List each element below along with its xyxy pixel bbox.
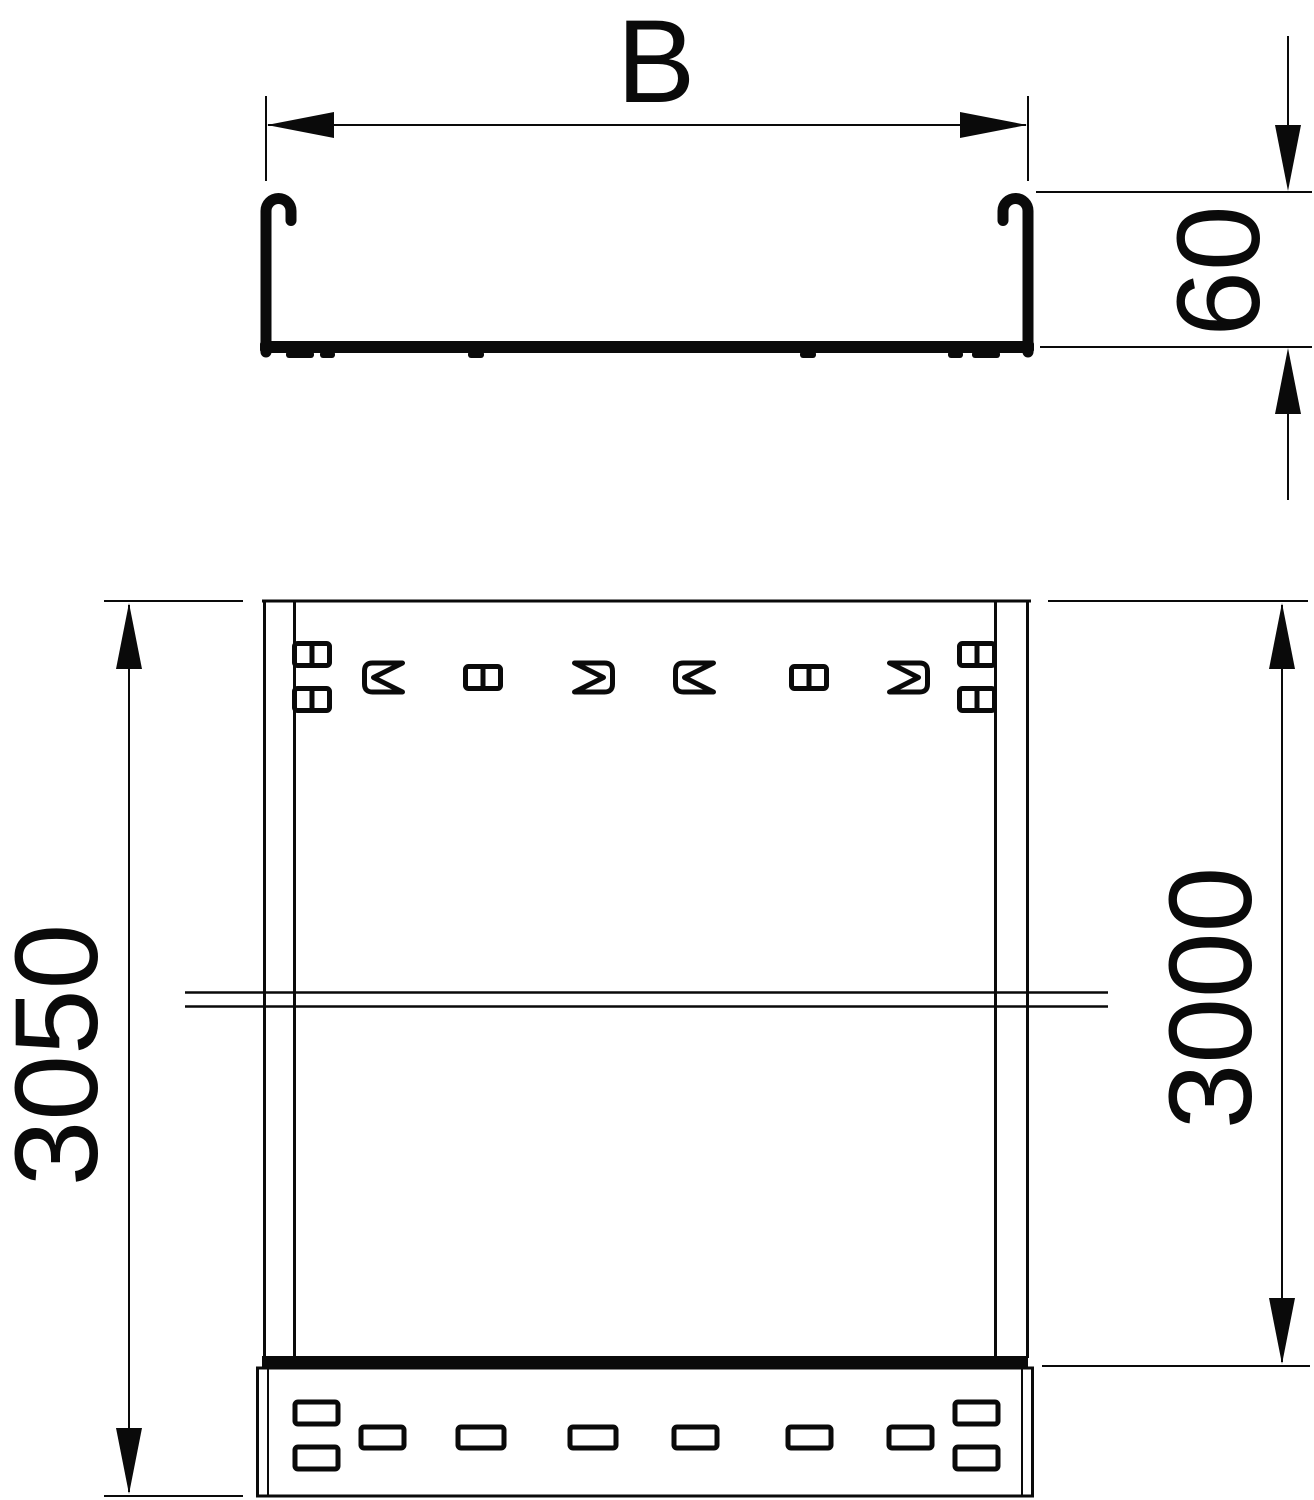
cross-section-bottom-plate [260, 341, 1034, 353]
cable-tray-drawing: B 60 [0, 0, 1314, 1500]
arrow-down [1269, 1298, 1295, 1364]
arrow-down [1275, 125, 1301, 191]
technical-drawing-page: B 60 [0, 0, 1314, 1500]
plan-slot-row [295, 644, 995, 711]
rail-slot-pair [295, 644, 330, 666]
arrow-left [267, 112, 334, 138]
cross-section-left-wall-hook [266, 198, 291, 352]
coupler-end-piece [258, 1356, 1033, 1496]
width-dimension-label: B [617, 0, 696, 128]
arrow-up [1269, 603, 1295, 669]
rail-slot-pair [960, 644, 995, 666]
arrow-right [960, 112, 1027, 138]
rail-slot-pair [960, 689, 995, 711]
dimension-overall-length-3050: 3050 [0, 601, 243, 1496]
overall-length-dimension-label: 3050 [0, 924, 123, 1187]
slot-c-shape [365, 663, 403, 692]
slot-double-square [792, 667, 827, 689]
dimension-height-60: 60 [1036, 36, 1312, 500]
slot-double-square [466, 667, 501, 689]
dimension-rail-length-3000: 3000 [1042, 601, 1310, 1366]
height-dimension-label: 60 [1153, 205, 1285, 336]
arrow-down [116, 1428, 142, 1494]
rail-length-dimension-label: 3000 [1145, 867, 1277, 1130]
slot-d-shape [890, 663, 928, 692]
plan-side-rails [265, 601, 1028, 1358]
rail-slot-pair [295, 689, 330, 711]
arrow-up [1275, 348, 1301, 414]
cross-section-view: B 60 [260, 0, 1312, 500]
coupler-top-band [262, 1356, 1028, 1368]
cross-section-right-wall-hook [1003, 198, 1028, 352]
break-lines [185, 993, 1108, 1007]
arrow-up [116, 603, 142, 669]
dimension-width-B: B [266, 0, 1028, 181]
slot-c-shape [676, 663, 714, 692]
plan-view: 3050 3000 [0, 601, 1310, 1496]
coupler-outline [258, 1368, 1033, 1496]
slot-d-shape [575, 663, 613, 692]
